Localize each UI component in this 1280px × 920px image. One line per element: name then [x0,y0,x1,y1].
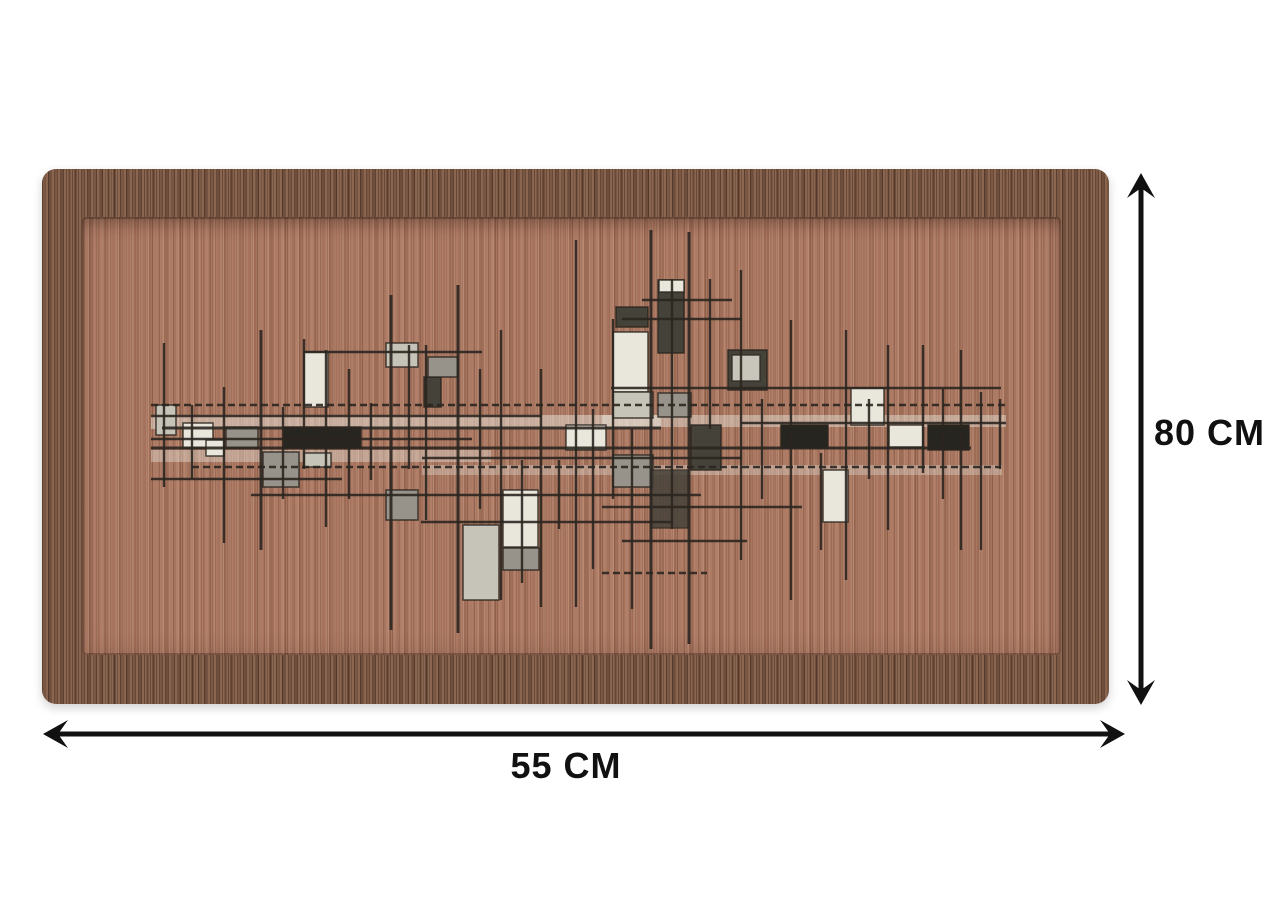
rug-abstract-pattern [42,169,1109,704]
width-dimension-label: 55 CM [460,748,672,784]
rug-image [42,169,1109,704]
height-dimension-label: 80 CM [1154,415,1265,451]
product-dimension-diagram: 80 CM 55 CM [0,0,1280,920]
